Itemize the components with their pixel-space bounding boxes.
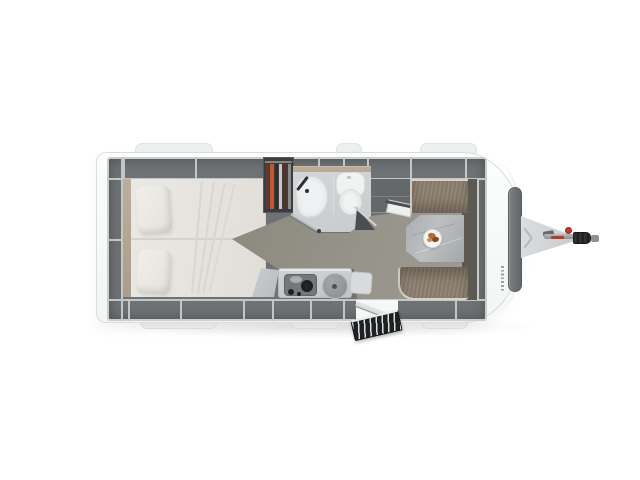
dinette-bench-front [410, 179, 468, 213]
worktop-flap [349, 271, 372, 294]
locker-divider [465, 157, 467, 179]
locker-divider [410, 157, 412, 179]
locker-divider [243, 299, 245, 321]
locker-divider [128, 299, 130, 321]
bathroom-partition [333, 173, 334, 215]
locker-divider [107, 239, 123, 241]
shower-head [305, 189, 309, 193]
sink-drain [332, 284, 337, 289]
hitch-coupling [573, 232, 591, 244]
locker-divider [195, 157, 197, 179]
hob-knob [288, 289, 294, 295]
food-item [427, 238, 432, 242]
wardrobe-rail [265, 161, 292, 163]
bed-wood-trim [123, 179, 131, 297]
shower-door-handle [317, 229, 321, 233]
caravan-floorplan [0, 0, 640, 480]
hob-knob [297, 292, 301, 296]
hob-lid [290, 276, 302, 283]
locker-divider [455, 299, 457, 321]
dinette-wall-line [477, 179, 479, 300]
burner [301, 280, 313, 292]
toilet-button [347, 176, 351, 179]
locker-divider [180, 299, 182, 321]
pillow [135, 185, 172, 235]
locker-divider [310, 299, 312, 321]
locker-divider [343, 299, 345, 321]
locker-divider [318, 157, 320, 166]
locker-divider [272, 299, 274, 321]
pillow [136, 249, 172, 295]
hanging-clothes [266, 164, 291, 209]
side-cabinet-shelf [371, 196, 410, 197]
jockey-red-bar [551, 236, 564, 239]
dinette-bench-rear [398, 267, 468, 300]
jockey-red-knob [565, 227, 572, 234]
locker-divider [343, 157, 345, 166]
locker-divider [123, 157, 125, 179]
locker-divider [367, 157, 369, 166]
front-window [508, 187, 522, 292]
brand-marking [501, 266, 504, 292]
hitch-tip [591, 235, 599, 242]
